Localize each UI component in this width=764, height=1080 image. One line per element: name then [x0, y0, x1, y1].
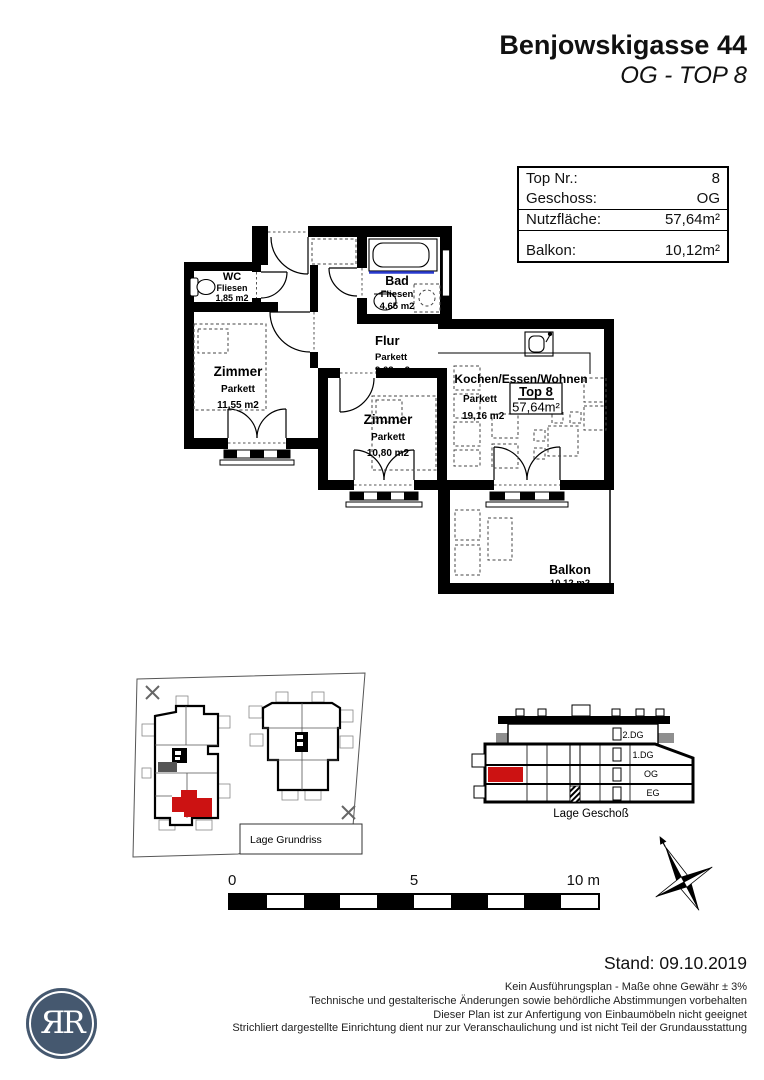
room-area: 9,63 m2: [375, 365, 410, 376]
page-subtitle: OG - TOP 8: [499, 61, 747, 90]
room-surface: Parkett: [221, 384, 256, 395]
building-section: 2.DG 1.DG OG EG Lage Geschoß: [470, 692, 710, 824]
plan-sheet: Benjowskigasse 44 OG - TOP 8 Top Nr.: 8 …: [0, 0, 764, 1080]
dining-table: [548, 426, 578, 456]
stair-core: [172, 748, 187, 763]
logo-monogram: ЯR: [40, 1005, 82, 1041]
room-label: Bad: [385, 274, 409, 288]
left-balconies: [472, 754, 485, 798]
row-label: Geschoss:: [526, 190, 597, 207]
room-area: 19,16 m2: [462, 411, 505, 422]
entrance-hatch: [570, 786, 580, 802]
row-label: Top Nr.:: [526, 170, 578, 187]
bathtub: [369, 239, 437, 273]
section-caption: Lage Geschoß: [553, 808, 628, 820]
bath-door: [329, 268, 357, 296]
gray-annex: [158, 762, 177, 772]
wardrobe: [312, 239, 356, 264]
scale-bar: 0 5 10 m: [228, 872, 600, 910]
side-mass-left: [496, 733, 508, 743]
floor-label: OG: [644, 769, 658, 779]
unit-badge-area: 57,64m²: [512, 400, 560, 415]
scale-tick-10: 10 m: [567, 872, 600, 889]
entry-door: [271, 237, 308, 274]
table-row: Top Nr.: 8: [519, 168, 727, 189]
roof: [498, 705, 670, 724]
floor-label: 2.DG: [622, 730, 643, 740]
highlighted-floor-unit: [488, 767, 523, 782]
room-area: 4,65 m2: [380, 301, 415, 312]
floor-label: EG: [646, 788, 659, 798]
disclaimer-line: Strichliert dargestellte Einrichtung die…: [232, 1022, 747, 1036]
row-value: 10,12m²: [665, 242, 720, 259]
floorplan-drawing: WC Fliesen 1,85 m2 Bad Fliesen 4,65 m2 F…: [182, 222, 622, 602]
balcony-chair: [455, 545, 480, 575]
room-surface: Fliesen: [216, 283, 247, 293]
disclaimer-line: Kein Ausführungsplan - Maße ohne Gewähr …: [232, 981, 747, 995]
disclaimer-line: Technische und gestalterische Änderungen…: [232, 995, 747, 1009]
title-block: Benjowskigasse 44 OG - TOP 8: [499, 30, 747, 90]
room-label: Zimmer: [364, 412, 414, 427]
site-plan: Lage Grundriss: [126, 668, 371, 863]
table-row: Geschoss: OG: [519, 189, 727, 210]
kitchen-sink: [525, 332, 553, 356]
wc-door: [261, 272, 287, 298]
kitchen-counter: [438, 353, 590, 374]
room-label: Zimmer: [214, 364, 264, 379]
room-area: 11,55 m2: [217, 400, 259, 411]
unit-badge: Top 8 57,64m²: [510, 383, 562, 415]
french-door-living: [494, 447, 560, 480]
wc-toilet: [190, 278, 215, 296]
room-surface: Parkett: [375, 352, 408, 363]
building-left: [142, 696, 230, 830]
site-plan-caption: Lage Grundriss: [250, 834, 322, 846]
bedroom2-door: [340, 378, 374, 412]
row-value: 57,64m²: [665, 211, 720, 228]
room-surface: Fliesen: [381, 289, 414, 300]
side-mass-right: [658, 733, 674, 743]
floor-label: 1.DG: [632, 750, 653, 760]
balcony-chair: [455, 510, 480, 540]
row-value: OG: [697, 190, 720, 207]
room-label: Flur: [375, 333, 400, 348]
balcony-table: [488, 518, 512, 560]
scale-bar-segments: [228, 893, 600, 910]
row-value: 8: [712, 170, 720, 187]
revision-date: Stand: 09.10.2019: [604, 953, 747, 974]
room-area: 10,80 m2: [367, 448, 410, 459]
washing-machine: [414, 284, 440, 312]
disclaimer-notes: Kein Ausführungsplan - Maße ohne Gewähr …: [232, 981, 747, 1036]
room-label: Balkon: [549, 563, 591, 577]
scale-ticks: 0 5 10 m: [228, 872, 600, 890]
room-label: WC: [223, 271, 241, 283]
compass-icon: [642, 836, 727, 921]
room-surface: Parkett: [463, 394, 498, 405]
room-area: 10,12 m2: [550, 578, 590, 589]
unit-badge-number: Top 8: [519, 384, 553, 399]
page-title: Benjowskigasse 44: [499, 30, 747, 61]
room-surface: Parkett: [371, 432, 406, 443]
french-door-bedroom1: [228, 409, 286, 438]
disclaimer-line: Dieser Plan ist zur Anfertigung von Einb…: [232, 1009, 747, 1023]
bedroom1-door: [270, 312, 310, 352]
scale-tick-0: 0: [228, 872, 236, 889]
room-area: 1,85 m2: [215, 293, 248, 303]
scale-tick-5: 5: [410, 872, 418, 889]
company-logo: ЯR: [26, 988, 97, 1059]
